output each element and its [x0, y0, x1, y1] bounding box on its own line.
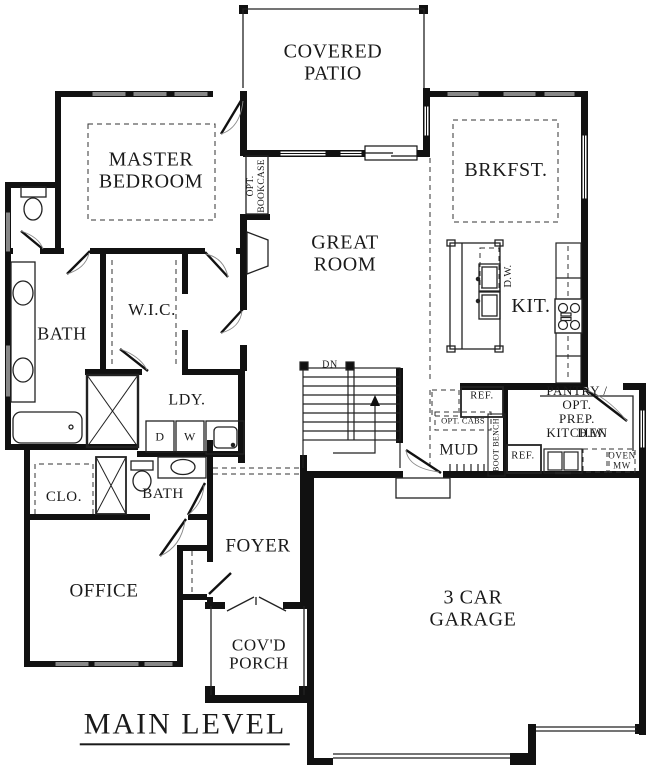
room-label-foyer: FOYER	[225, 537, 290, 558]
master-bath-fixtures	[11, 187, 138, 447]
room-label-brkfst: BRKFST.	[464, 160, 547, 182]
front-door-chevron	[227, 597, 286, 611]
label-pantry-dw: D.W.	[577, 426, 606, 440]
cooktop-icon	[555, 299, 582, 333]
garage-stoop	[396, 478, 450, 498]
room-label-great-room: GREAT ROOM	[311, 232, 378, 275]
stairs-icon	[300, 362, 400, 468]
room-label-ldy: LDY.	[168, 391, 205, 408]
plan-title: MAIN LEVEL	[80, 708, 290, 745]
label-ref-pantry: REF.	[511, 450, 534, 461]
label-boot-bench: BOOT BENCH	[491, 418, 500, 472]
floor-plan: COVERED PATIO MASTER BEDROOM BRKFST. GRE…	[0, 0, 654, 768]
linen-closet-icon	[96, 457, 126, 514]
label-opt-bookcase: OPT. BOOKCASE	[246, 159, 268, 213]
pantry-sink-icon	[544, 449, 582, 473]
room-label-covered-patio: COVERED PATIO	[284, 41, 383, 84]
room-label-mud: MUD	[439, 441, 478, 458]
bath2-door	[188, 483, 205, 515]
sliding-door	[365, 146, 417, 160]
room-label-garage: 3 CAR GARAGE	[430, 587, 517, 630]
wic-door	[120, 349, 148, 371]
vanity-sink-icon	[158, 457, 206, 478]
room-label-bath: BATH	[37, 324, 86, 343]
room-label-master-bedroom: MASTER BEDROOM	[99, 149, 203, 192]
shower-icon	[87, 375, 138, 447]
label-ref-mud: REF.	[470, 390, 493, 401]
hall-greatroom-door	[221, 309, 243, 333]
bath-door	[67, 251, 90, 274]
room-label-wic: W.I.C.	[128, 301, 176, 319]
bathtub-icon	[13, 412, 82, 443]
label-washer: W	[184, 431, 196, 444]
room-label-covd-porch: COV'D PORCH	[229, 637, 289, 674]
room-label-kit: KIT.	[511, 296, 550, 318]
master-hall-door	[205, 252, 228, 277]
vanity-sinks-icon	[11, 262, 35, 402]
label-dryer: D	[155, 431, 164, 444]
wc-door	[21, 231, 44, 250]
island-dw-box	[480, 248, 499, 288]
bench-ticks	[450, 464, 484, 471]
pantry-dw-box	[583, 449, 607, 472]
label-stairs-dn: DN	[322, 361, 338, 372]
room-label-clo: CLO.	[46, 489, 82, 505]
fireplace-niche	[247, 232, 268, 274]
toilet-icon	[21, 187, 46, 220]
foyer-closet-door	[209, 573, 231, 594]
label-oven-mw: OVEN MW	[608, 451, 635, 470]
label-opt-cabs: OPT. CABS	[441, 416, 485, 425]
label-island-dw: D.W.	[503, 265, 515, 288]
room-label-bath2: BATH	[142, 486, 184, 502]
room-label-office: OFFICE	[69, 582, 138, 603]
kitchen-island	[447, 240, 503, 352]
